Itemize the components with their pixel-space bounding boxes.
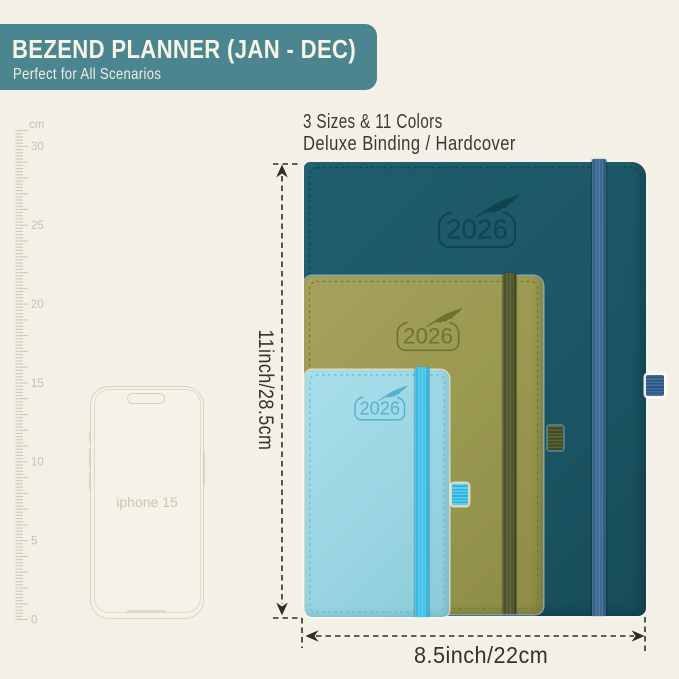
svg-text:25: 25 [31, 220, 44, 232]
svg-text:2026: 2026 [359, 397, 399, 418]
svg-text:2026: 2026 [446, 214, 508, 245]
svg-text:5: 5 [31, 536, 37, 548]
svg-text:10: 10 [31, 457, 44, 469]
svg-text:20: 20 [31, 299, 44, 311]
svg-text:0: 0 [31, 614, 37, 626]
svg-text:2026: 2026 [403, 323, 453, 348]
svg-text:30: 30 [31, 141, 44, 153]
svg-text:15: 15 [31, 378, 44, 390]
svg-text:cm: cm [29, 119, 44, 131]
